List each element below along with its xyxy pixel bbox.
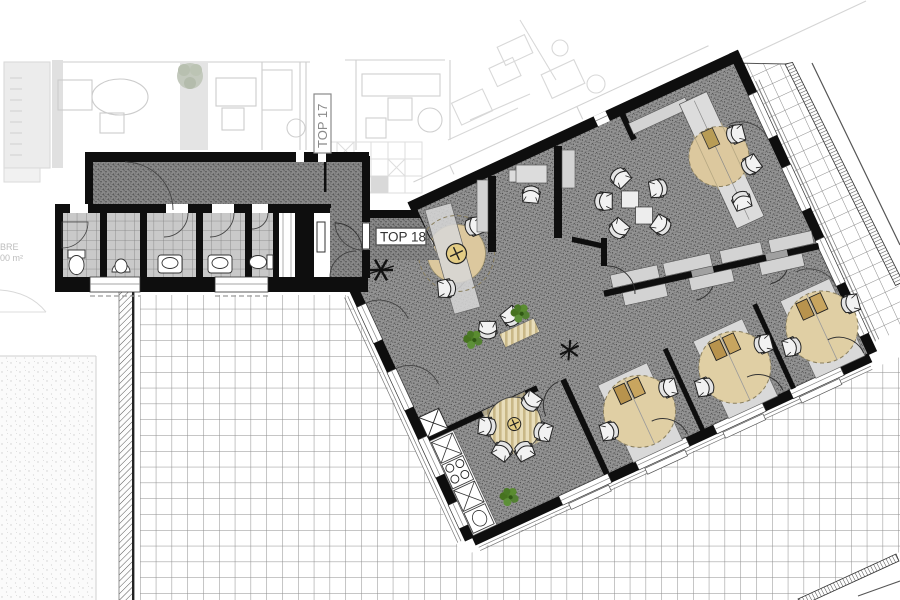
svg-text:TOP 18: TOP 18	[380, 230, 426, 245]
svg-text:TOP 17: TOP 17	[315, 104, 330, 148]
svg-text:BRE: BRE	[0, 242, 19, 252]
svg-text:00 m²: 00 m²	[0, 253, 23, 263]
